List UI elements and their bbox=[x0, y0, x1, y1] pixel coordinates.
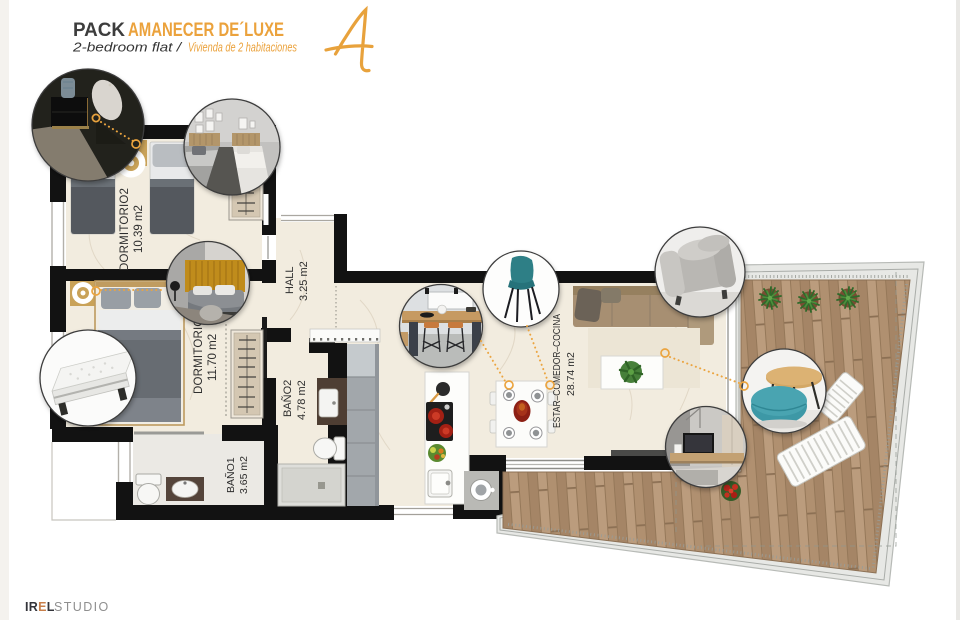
svg-text:BAÑO1: BAÑO1 bbox=[224, 457, 237, 493]
svg-text:10.39 m2: 10.39 m2 bbox=[133, 205, 145, 253]
svg-text:AMANECER DE´LUXE: AMANECER DE´LUXE bbox=[128, 20, 284, 41]
svg-text:PACK: PACK bbox=[73, 20, 125, 41]
svg-text:STUDIO: STUDIO bbox=[54, 600, 110, 614]
svg-text:28.74 m2: 28.74 m2 bbox=[565, 352, 577, 396]
svg-text:3.65 m2: 3.65 m2 bbox=[238, 456, 250, 494]
svg-text:DORMITORIO2: DORMITORIO2 bbox=[119, 188, 131, 271]
svg-text:2-bedroom flat /: 2-bedroom flat / bbox=[72, 41, 183, 55]
svg-text:3.25 m2: 3.25 m2 bbox=[298, 261, 310, 301]
svg-text:IREL: IREL bbox=[25, 600, 55, 614]
svg-text:Vivienda de 2 habitaciones: Vivienda de 2 habitaciones bbox=[188, 41, 297, 55]
svg-text:HALL: HALL bbox=[284, 266, 296, 294]
svg-text:11.70 m2: 11.70 m2 bbox=[207, 334, 219, 381]
svg-text:BAÑO2: BAÑO2 bbox=[281, 380, 294, 417]
svg-text:4.78 m2: 4.78 m2 bbox=[296, 380, 308, 420]
svg-text:ESTAR–COMEDOR–COCINA: ESTAR–COMEDOR–COCINA bbox=[551, 314, 563, 428]
